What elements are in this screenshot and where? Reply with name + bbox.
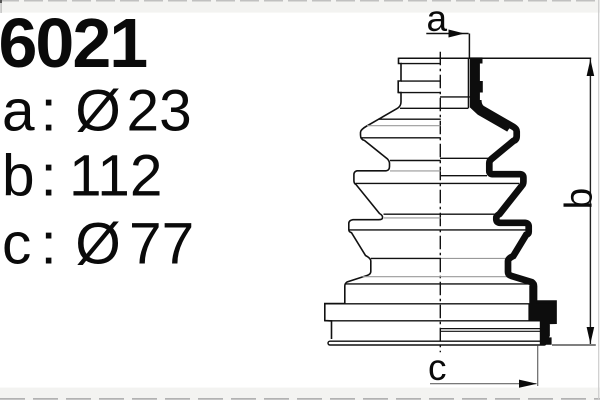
svg-text::: :: [41, 144, 57, 209]
svg-text::: :: [41, 211, 57, 276]
svg-text:b: b: [2, 144, 35, 209]
svg-text:112: 112: [69, 144, 162, 209]
svg-text:a: a: [2, 79, 35, 144]
svg-text:Ø: Ø: [75, 79, 121, 144]
svg-text::: :: [41, 79, 57, 144]
svg-text:c: c: [428, 347, 447, 388]
svg-text:23: 23: [127, 79, 192, 144]
svg-text:b: b: [558, 188, 600, 210]
svg-text:6021: 6021: [0, 4, 146, 82]
svg-text:c: c: [2, 211, 31, 276]
svg-text:77: 77: [129, 211, 194, 276]
svg-text:Ø: Ø: [75, 211, 121, 276]
